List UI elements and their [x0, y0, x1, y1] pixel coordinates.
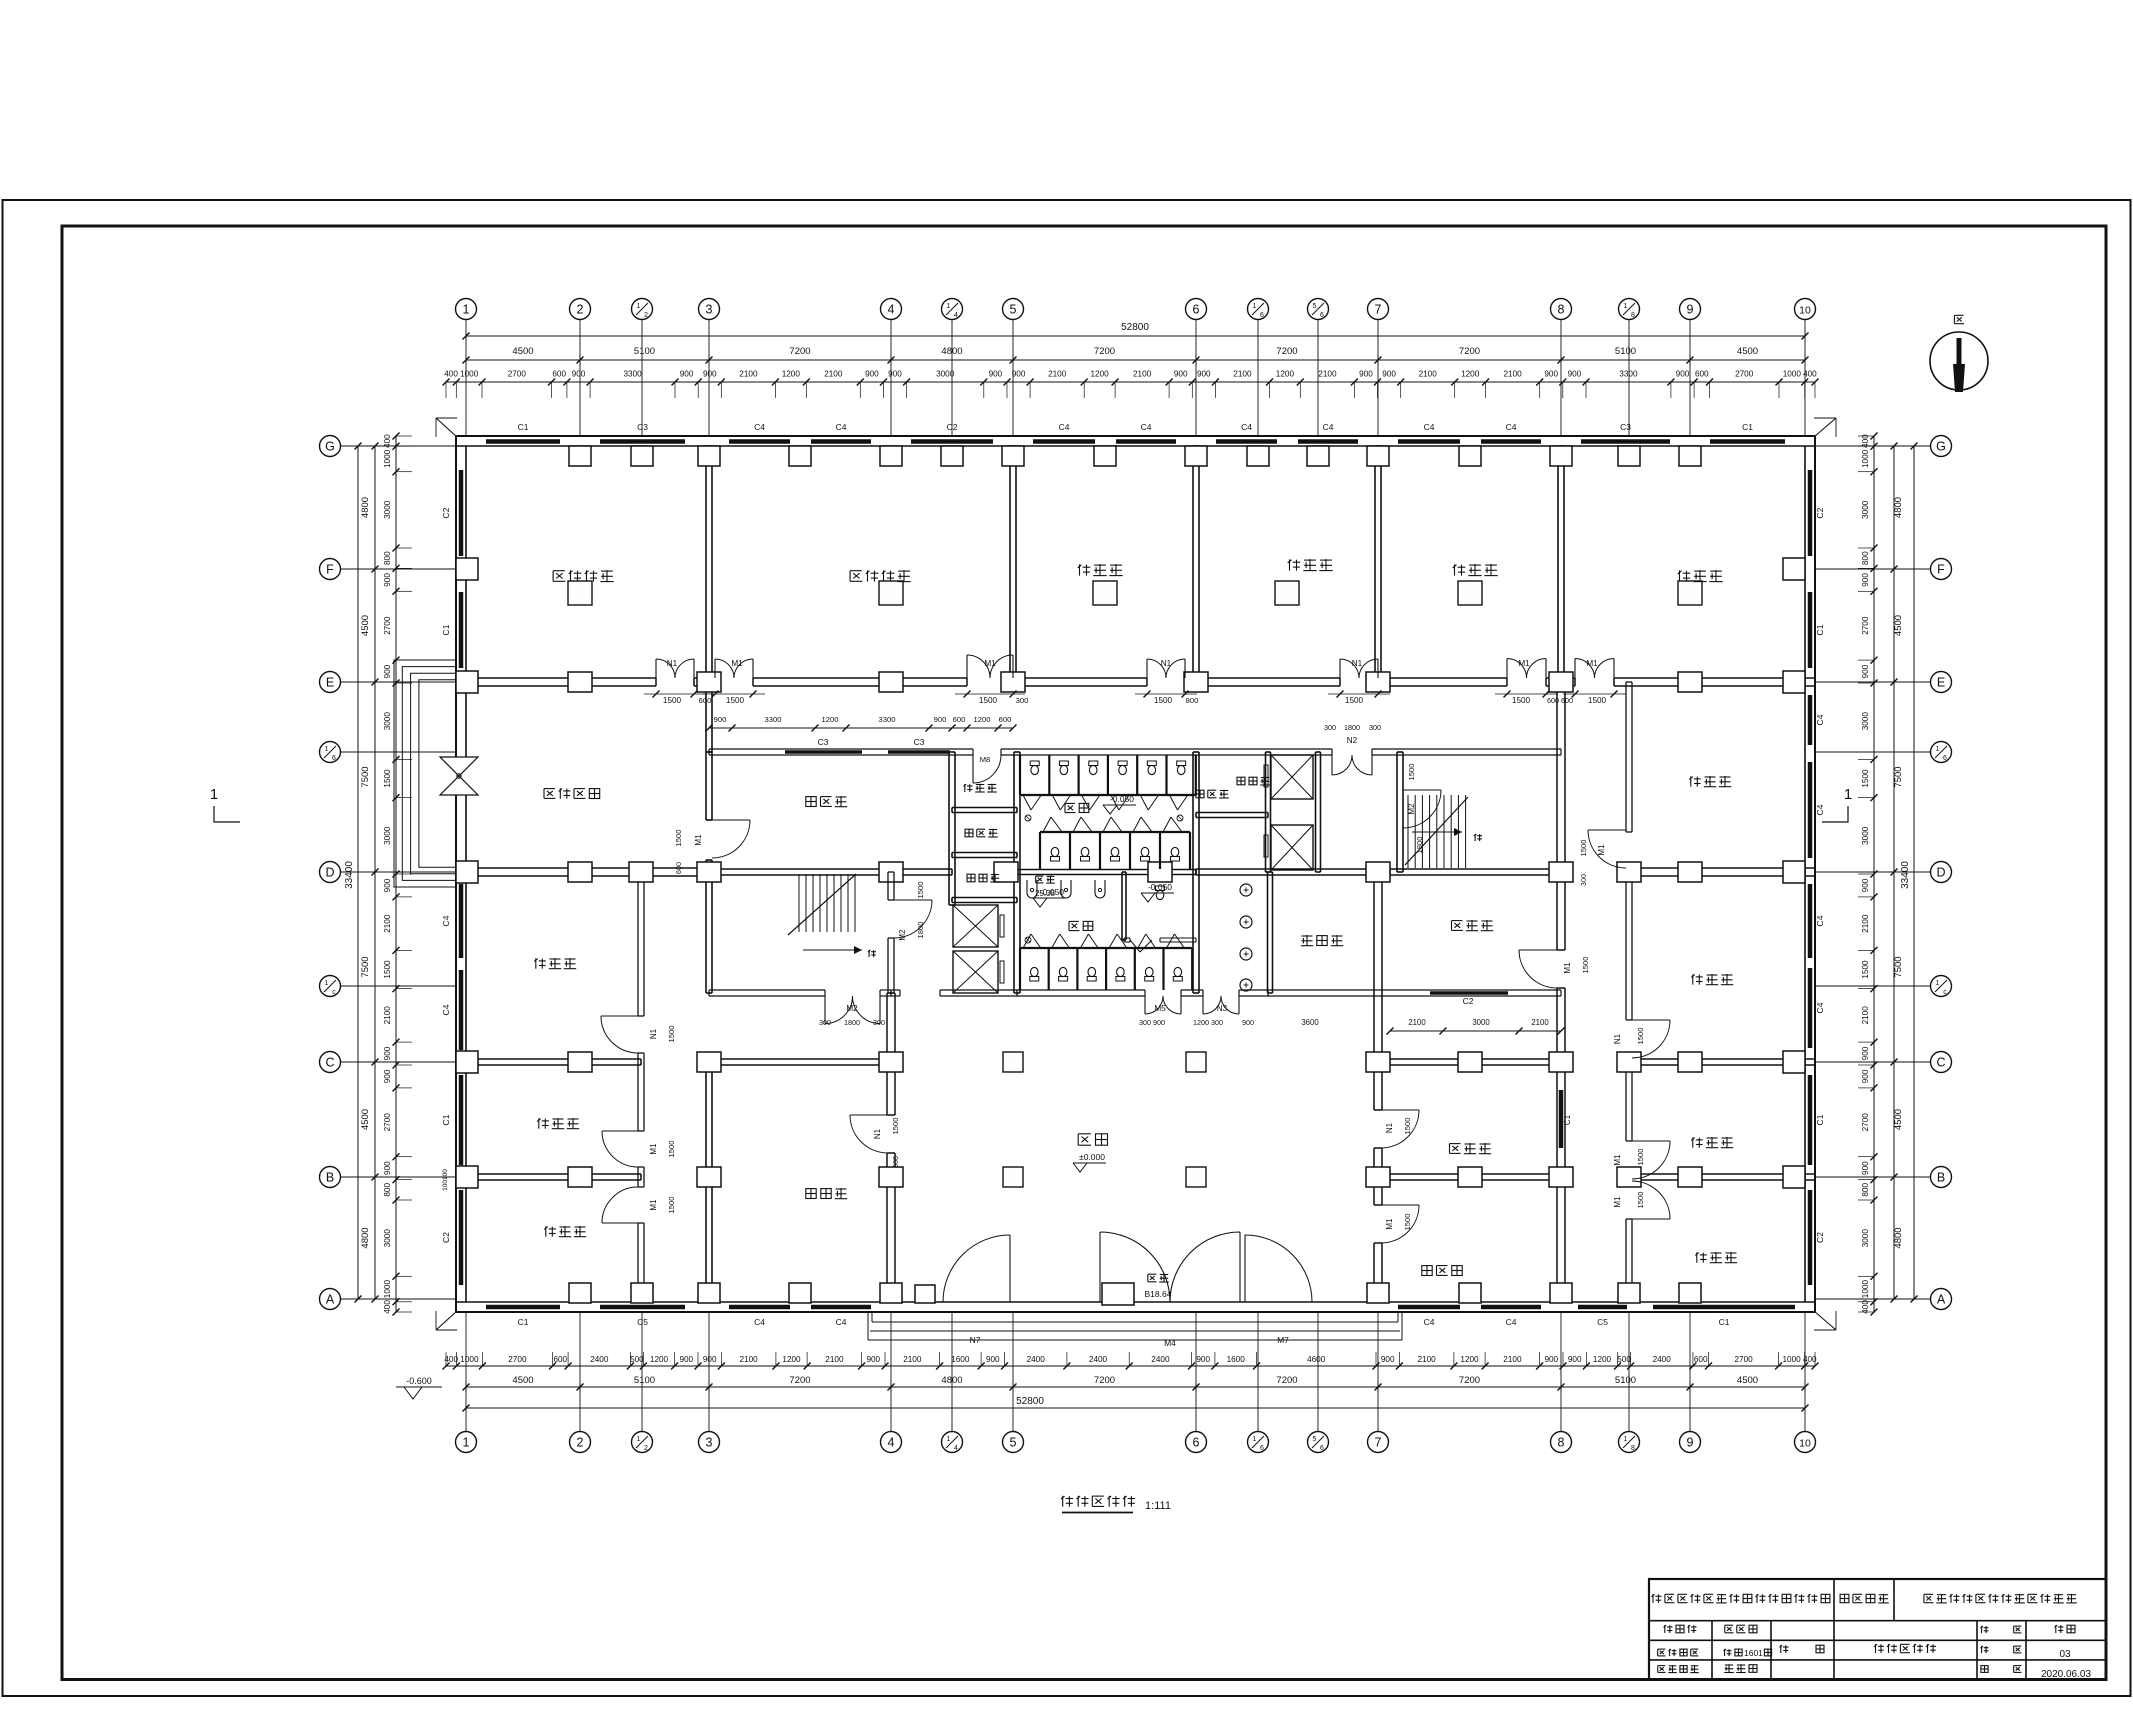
svg-text:2700: 2700 [383, 1113, 392, 1132]
svg-text:7: 7 [1375, 303, 1382, 317]
svg-text:2400: 2400 [590, 1355, 609, 1364]
svg-text:N1: N1 [1161, 659, 1172, 668]
svg-text:4: 4 [954, 312, 958, 319]
svg-text:C4: C4 [836, 422, 847, 432]
svg-text:900: 900 [383, 1046, 392, 1060]
svg-text:900: 900 [1861, 1046, 1870, 1060]
svg-text:1500: 1500 [1403, 1118, 1412, 1135]
svg-text:1800: 1800 [916, 922, 925, 939]
svg-text:7200: 7200 [1094, 346, 1115, 357]
svg-text:900: 900 [383, 573, 392, 587]
svg-text:900: 900 [865, 370, 879, 379]
svg-text:F: F [326, 563, 334, 577]
svg-text:2: 2 [577, 1436, 584, 1450]
svg-text:1: 1 [463, 1436, 470, 1450]
svg-text:6: 6 [1193, 303, 1200, 317]
svg-text:C4: C4 [1059, 422, 1070, 432]
svg-text:2100: 2100 [1233, 370, 1252, 379]
svg-text:300: 300 [819, 1018, 831, 1027]
svg-text:2700: 2700 [1861, 1113, 1870, 1132]
svg-text:M1: M1 [694, 834, 703, 846]
svg-text:1500: 1500 [383, 960, 392, 979]
svg-text:900: 900 [1242, 1018, 1254, 1027]
svg-text:2100: 2100 [739, 1355, 758, 1364]
svg-text:C1: C1 [1815, 624, 1825, 635]
svg-text:500: 500 [630, 1355, 644, 1364]
svg-text:1200: 1200 [1276, 370, 1295, 379]
svg-text:1500: 1500 [667, 1197, 676, 1214]
svg-text:4500: 4500 [512, 1375, 533, 1386]
svg-text:3300: 3300 [1619, 370, 1638, 379]
svg-text:C2: C2 [441, 507, 451, 518]
svg-text:C4: C4 [1323, 422, 1334, 432]
svg-text:M1: M1 [1613, 1196, 1622, 1208]
svg-text:1: 1 [637, 303, 641, 310]
svg-text:2100: 2100 [1419, 370, 1438, 379]
svg-text:M5: M5 [1154, 1004, 1166, 1013]
svg-text:C4: C4 [1506, 422, 1517, 432]
svg-text:3600: 3600 [1301, 1018, 1319, 1027]
svg-text:600: 600 [552, 370, 566, 379]
svg-text:2100: 2100 [1861, 914, 1870, 933]
svg-text:1:111: 1:111 [1145, 1500, 1171, 1512]
svg-text:1: 1 [947, 1436, 951, 1443]
svg-text:25.38: 25.38 [1035, 889, 1056, 898]
svg-text:1000: 1000 [383, 449, 392, 468]
svg-text:1200 300: 1200 300 [1193, 1018, 1223, 1027]
svg-text:1000: 1000 [383, 1280, 392, 1299]
svg-text:c: c [1943, 989, 1947, 996]
svg-text:900: 900 [703, 370, 717, 379]
svg-text:5100: 5100 [1615, 1375, 1636, 1386]
svg-text:800: 800 [383, 1183, 392, 1197]
svg-text:C3: C3 [637, 422, 648, 432]
svg-text:1: 1 [325, 980, 329, 987]
svg-text:C4: C4 [754, 422, 765, 432]
svg-text:2100: 2100 [1503, 1355, 1522, 1364]
svg-text:1200: 1200 [974, 715, 991, 724]
svg-text:N3: N3 [1217, 1004, 1228, 1013]
svg-text:A: A [326, 1293, 335, 1307]
svg-text:M1: M1 [1613, 1154, 1622, 1166]
svg-text:C1: C1 [518, 422, 529, 432]
svg-text:900: 900 [1568, 1355, 1582, 1364]
svg-text:10: 10 [1799, 1438, 1811, 1450]
svg-text:N1: N1 [1613, 1033, 1622, 1044]
svg-text:6: 6 [1193, 1436, 1200, 1450]
svg-text:7500: 7500 [360, 766, 371, 787]
svg-text:2: 2 [577, 303, 584, 317]
svg-text:600: 600 [891, 1156, 900, 1168]
svg-text:1500: 1500 [726, 696, 745, 705]
svg-text:300 900: 300 900 [1139, 1018, 1165, 1027]
svg-text:1500: 1500 [1588, 696, 1607, 705]
svg-text:3000: 3000 [383, 826, 392, 845]
svg-text:M2: M2 [846, 1004, 858, 1013]
svg-text:2400: 2400 [1653, 1355, 1672, 1364]
svg-text:M1: M1 [1518, 659, 1530, 668]
svg-text:2100: 2100 [824, 370, 843, 379]
svg-text:900: 900 [1196, 1355, 1210, 1364]
svg-text:2400: 2400 [1089, 1355, 1108, 1364]
svg-text:33400: 33400 [1900, 861, 1911, 889]
svg-text:900: 900 [1544, 370, 1558, 379]
svg-text:2700: 2700 [1734, 1355, 1753, 1364]
svg-text:2100: 2100 [739, 370, 758, 379]
svg-text:5: 5 [1313, 303, 1317, 310]
svg-text:E: E [326, 676, 334, 690]
svg-text:900: 900 [1861, 664, 1870, 678]
svg-text:-0.600: -0.600 [406, 1376, 432, 1386]
svg-text:1200: 1200 [822, 715, 839, 724]
svg-text:900: 900 [680, 370, 694, 379]
svg-text:4500: 4500 [512, 346, 533, 357]
svg-text:1800: 1800 [1344, 723, 1360, 732]
svg-text:4: 4 [888, 1436, 895, 1450]
svg-text:600: 600 [1694, 1355, 1708, 1364]
svg-text:900: 900 [989, 370, 1003, 379]
svg-text:1601: 1601 [1744, 1648, 1763, 1658]
svg-text:1200: 1200 [1593, 1355, 1612, 1364]
svg-text:1600: 1600 [1227, 1355, 1246, 1364]
svg-text:1200: 1200 [1090, 370, 1109, 379]
svg-text:600: 600 [1547, 696, 1559, 705]
svg-text:C2: C2 [441, 1232, 451, 1243]
svg-text:B: B [1937, 1171, 1945, 1185]
svg-text:2100: 2100 [1861, 1006, 1870, 1025]
svg-text:5100: 5100 [634, 1375, 655, 1386]
svg-text:600: 600 [953, 715, 966, 724]
svg-text:900: 900 [703, 1355, 717, 1364]
svg-text:7500: 7500 [360, 956, 371, 977]
svg-text:800: 800 [383, 551, 392, 565]
svg-text:400: 400 [1861, 1300, 1870, 1314]
svg-text:2700: 2700 [508, 370, 527, 379]
svg-text:1500: 1500 [667, 1026, 676, 1043]
svg-text:300: 300 [1016, 696, 1029, 705]
svg-text:10: 10 [1799, 305, 1811, 317]
svg-text:7200: 7200 [789, 1375, 810, 1386]
svg-text:900: 900 [1359, 370, 1373, 379]
svg-text:M1: M1 [984, 659, 996, 668]
svg-text:900: 900 [383, 1161, 392, 1175]
svg-text:1500: 1500 [979, 696, 998, 705]
svg-text:4800: 4800 [941, 346, 962, 357]
svg-text:5: 5 [1010, 303, 1017, 317]
svg-text:900: 900 [1381, 1355, 1395, 1364]
svg-text:900: 900 [1382, 370, 1396, 379]
svg-text:300: 300 [1324, 723, 1336, 732]
svg-text:N1: N1 [873, 1128, 882, 1139]
svg-text:C4: C4 [1815, 1002, 1825, 1013]
svg-text:7200: 7200 [1276, 346, 1297, 357]
svg-text:3300: 3300 [879, 715, 896, 724]
svg-text:400: 400 [444, 370, 458, 379]
svg-text:G: G [325, 440, 335, 454]
svg-text:3300: 3300 [765, 715, 782, 724]
svg-text:M1: M1 [1563, 962, 1572, 974]
svg-text:6: 6 [1260, 312, 1264, 319]
svg-text:1500: 1500 [1581, 957, 1590, 974]
svg-text:7200: 7200 [789, 346, 810, 357]
svg-text:900: 900 [383, 878, 392, 892]
svg-text:C1: C1 [1742, 422, 1753, 432]
svg-text:1500: 1500 [1345, 696, 1364, 705]
svg-text:1: 1 [1624, 303, 1628, 310]
svg-text:600: 600 [999, 715, 1012, 724]
svg-text:B18.64: B18.64 [1145, 1289, 1172, 1299]
svg-text:4800: 4800 [360, 497, 371, 518]
svg-text:900: 900 [1861, 1069, 1870, 1083]
svg-text:7500: 7500 [1893, 766, 1904, 787]
svg-text:3300: 3300 [623, 370, 642, 379]
svg-text:A: A [1937, 1293, 1946, 1307]
svg-text:2700: 2700 [383, 616, 392, 635]
svg-text:100100: 100100 [442, 1169, 449, 1191]
svg-text:M8: M8 [980, 755, 991, 764]
svg-text:4500: 4500 [1737, 1375, 1758, 1386]
svg-text:1500: 1500 [1861, 769, 1870, 788]
svg-text:1: 1 [1936, 746, 1940, 753]
svg-text:N2: N2 [1347, 736, 1358, 745]
svg-text:5: 5 [1010, 1436, 1017, 1450]
svg-text:300: 300 [1369, 723, 1381, 732]
svg-text:1500: 1500 [1636, 1149, 1645, 1166]
svg-text:7200: 7200 [1276, 1375, 1297, 1386]
svg-text:F: F [1937, 563, 1945, 577]
svg-text:C3: C3 [914, 737, 925, 747]
svg-text:600: 600 [674, 862, 683, 874]
svg-text:900: 900 [1544, 1355, 1558, 1364]
svg-text:1: 1 [210, 786, 218, 803]
svg-text:4500: 4500 [1737, 346, 1758, 357]
svg-text:3000: 3000 [936, 370, 955, 379]
svg-text:2700: 2700 [508, 1355, 527, 1364]
svg-text:-0.050: -0.050 [1110, 794, 1134, 804]
svg-text:C4: C4 [1141, 422, 1152, 432]
svg-text:2100: 2100 [903, 1355, 922, 1364]
svg-text:1500: 1500 [1636, 1028, 1645, 1045]
svg-text:C3: C3 [1620, 422, 1631, 432]
svg-text:M2: M2 [898, 929, 907, 941]
svg-text:400: 400 [444, 1355, 458, 1364]
svg-text:4800: 4800 [1893, 497, 1904, 518]
svg-text:D: D [1936, 866, 1945, 880]
svg-text:900: 900 [383, 1069, 392, 1083]
svg-text:600: 600 [699, 696, 712, 705]
svg-text:N1: N1 [649, 1028, 658, 1039]
svg-text:M1: M1 [649, 1199, 658, 1211]
svg-text:900: 900 [1861, 878, 1870, 892]
svg-text:M1: M1 [649, 1143, 658, 1155]
svg-text:3000: 3000 [383, 500, 392, 519]
svg-text:2100: 2100 [1048, 370, 1067, 379]
svg-text:C4: C4 [1815, 714, 1825, 725]
svg-text:52800: 52800 [1121, 322, 1149, 333]
svg-text:7200: 7200 [1459, 346, 1480, 357]
svg-text:7500: 7500 [1893, 956, 1904, 977]
svg-text:1: 1 [1624, 1436, 1628, 1443]
svg-text:1: 1 [1936, 980, 1940, 987]
svg-text:4800: 4800 [360, 1227, 371, 1248]
svg-text:4500: 4500 [360, 615, 371, 636]
svg-text:03: 03 [2059, 1649, 2071, 1660]
svg-text:C2: C2 [1815, 1232, 1825, 1243]
svg-text:300: 300 [873, 1018, 885, 1027]
svg-text:C4: C4 [1424, 1317, 1435, 1327]
svg-text:7200: 7200 [1459, 1375, 1480, 1386]
svg-text:3000: 3000 [1861, 826, 1870, 845]
svg-text:C1: C1 [441, 1114, 451, 1125]
svg-text:1200: 1200 [1460, 1355, 1479, 1364]
svg-text:7200: 7200 [1094, 1375, 1115, 1386]
svg-text:2400: 2400 [1151, 1355, 1170, 1364]
svg-text:1000: 1000 [1861, 1280, 1870, 1299]
svg-text:C1: C1 [1563, 1114, 1572, 1125]
svg-text:8: 8 [1631, 1445, 1635, 1452]
svg-text:900: 900 [1676, 370, 1690, 379]
svg-text:1: 1 [1253, 1436, 1257, 1443]
svg-text:800: 800 [1861, 1183, 1870, 1197]
svg-text:4500: 4500 [1893, 615, 1904, 636]
svg-text:3000: 3000 [1861, 500, 1870, 519]
svg-text:C3: C3 [818, 737, 829, 747]
svg-text:1500: 1500 [1512, 696, 1531, 705]
svg-text:3000: 3000 [1861, 712, 1870, 731]
svg-text:M1: M1 [731, 659, 743, 668]
svg-text:1: 1 [325, 746, 329, 753]
svg-text:2020.06.03: 2020.06.03 [2041, 1669, 2091, 1680]
svg-text:3000: 3000 [1861, 1229, 1870, 1248]
svg-text:1500: 1500 [674, 830, 683, 847]
svg-text:3000: 3000 [383, 712, 392, 731]
svg-text:6: 6 [1260, 1445, 1264, 1452]
svg-text:900: 900 [1568, 370, 1582, 379]
svg-text:G: G [1936, 440, 1946, 454]
svg-text:1500: 1500 [1154, 696, 1173, 705]
svg-text:33400: 33400 [344, 861, 355, 889]
svg-text:c: c [332, 989, 336, 996]
svg-text:1: 1 [637, 1436, 641, 1443]
svg-text:6: 6 [1320, 312, 1324, 319]
svg-text:5: 5 [1313, 1436, 1317, 1443]
svg-text:1: 1 [463, 303, 470, 317]
svg-text:900: 900 [1197, 370, 1211, 379]
svg-text:2100: 2100 [383, 1006, 392, 1025]
svg-text:C4: C4 [754, 1317, 765, 1327]
svg-text:800: 800 [1186, 696, 1199, 705]
svg-text:1200: 1200 [782, 370, 801, 379]
svg-text:1: 1 [947, 303, 951, 310]
svg-text:6: 6 [332, 755, 336, 762]
svg-text:±0.000: ±0.000 [1079, 1152, 1105, 1162]
svg-text:C4: C4 [1815, 804, 1825, 815]
svg-text:9: 9 [1687, 1436, 1694, 1450]
svg-text:C1: C1 [1719, 1317, 1730, 1327]
svg-text:C4: C4 [441, 1004, 451, 1015]
svg-text:D: D [325, 866, 334, 880]
svg-text:900: 900 [866, 1355, 880, 1364]
svg-text:900: 900 [986, 1355, 1000, 1364]
svg-text:1500: 1500 [667, 1141, 676, 1158]
svg-text:400: 400 [1803, 370, 1817, 379]
svg-text:C1: C1 [1815, 1114, 1825, 1125]
svg-text:4: 4 [888, 303, 895, 317]
svg-text:1000: 1000 [1861, 449, 1870, 468]
svg-text:3000: 3000 [383, 1229, 392, 1248]
svg-text:C2: C2 [1463, 996, 1474, 1006]
svg-text:400: 400 [383, 1300, 392, 1314]
svg-text:2100: 2100 [1503, 370, 1522, 379]
svg-text:3: 3 [706, 303, 713, 317]
svg-text:600: 600 [553, 1355, 567, 1364]
svg-text:2100: 2100 [383, 914, 392, 933]
svg-text:8: 8 [1558, 1436, 1565, 1450]
svg-text:8: 8 [1558, 303, 1565, 317]
svg-text:6: 6 [1943, 755, 1947, 762]
svg-text:2100: 2100 [825, 1355, 844, 1364]
svg-text:1200: 1200 [650, 1355, 669, 1364]
svg-text:300: 300 [1579, 874, 1588, 886]
svg-text:1: 1 [1253, 303, 1257, 310]
svg-text:2: 2 [644, 1445, 648, 1452]
svg-text:4600: 4600 [1307, 1355, 1326, 1364]
svg-text:1800: 1800 [844, 1018, 860, 1027]
svg-text:M1: M1 [1597, 844, 1606, 856]
svg-text:N1: N1 [1385, 1122, 1394, 1133]
svg-text:1500: 1500 [1407, 764, 1416, 781]
svg-text:2100: 2100 [1531, 1018, 1549, 1027]
svg-text:900: 900 [679, 1355, 693, 1364]
svg-text:800: 800 [1861, 551, 1870, 565]
svg-text:1000: 1000 [460, 1355, 479, 1364]
svg-text:400: 400 [1861, 434, 1870, 448]
svg-text:900: 900 [1012, 370, 1026, 379]
svg-text:1500: 1500 [1579, 840, 1588, 857]
svg-text:C: C [1936, 1056, 1945, 1070]
svg-text:2100: 2100 [1408, 1018, 1426, 1027]
svg-text:2100: 2100 [1417, 1355, 1436, 1364]
svg-text:8: 8 [1631, 312, 1635, 319]
svg-text:900: 900 [572, 370, 586, 379]
svg-text:C4: C4 [441, 915, 451, 926]
svg-text:600: 600 [1561, 696, 1573, 705]
svg-text:900: 900 [888, 370, 902, 379]
svg-text:3000: 3000 [1472, 1018, 1490, 1027]
svg-text:5100: 5100 [1615, 346, 1636, 357]
svg-text:C4: C4 [1815, 915, 1825, 926]
svg-text:3: 3 [706, 1436, 713, 1450]
svg-text:900: 900 [934, 715, 947, 724]
svg-text:C5: C5 [637, 1317, 648, 1327]
svg-text:2700: 2700 [1861, 616, 1870, 635]
svg-text:1500: 1500 [383, 769, 392, 788]
svg-text:M1: M1 [1385, 1218, 1394, 1230]
svg-text:N1: N1 [667, 659, 678, 668]
svg-text:1500: 1500 [1636, 1192, 1645, 1209]
svg-text:900: 900 [383, 664, 392, 678]
svg-text:C: C [325, 1056, 334, 1070]
svg-text:1200: 1200 [782, 1355, 801, 1364]
svg-text:2400: 2400 [1027, 1355, 1046, 1364]
svg-text:900: 900 [1174, 370, 1188, 379]
svg-text:C1: C1 [441, 624, 451, 635]
svg-text:M1: M1 [1586, 659, 1598, 668]
svg-text:400: 400 [1803, 1355, 1817, 1364]
svg-text:4500: 4500 [360, 1109, 371, 1130]
svg-text:1500: 1500 [1403, 1214, 1412, 1231]
svg-text:500: 500 [1617, 1355, 1631, 1364]
